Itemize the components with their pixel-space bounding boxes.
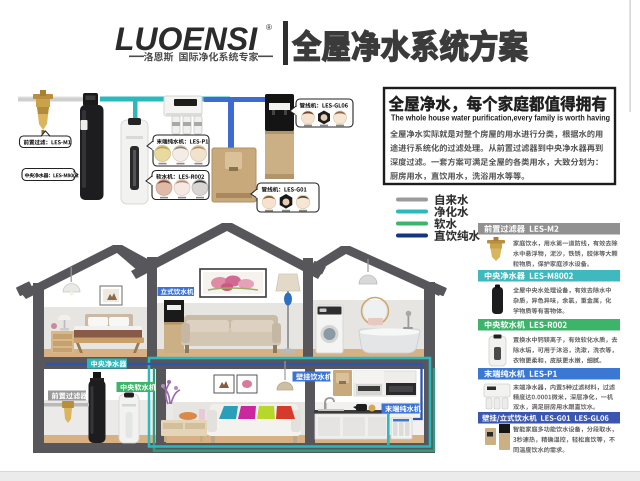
svg-text:The whole house water purifica: The whole house water purification,every…: [391, 113, 610, 123]
svg-text:®: ®: [266, 23, 272, 32]
svg-text:LUOENSI: LUOENSI: [115, 21, 258, 57]
